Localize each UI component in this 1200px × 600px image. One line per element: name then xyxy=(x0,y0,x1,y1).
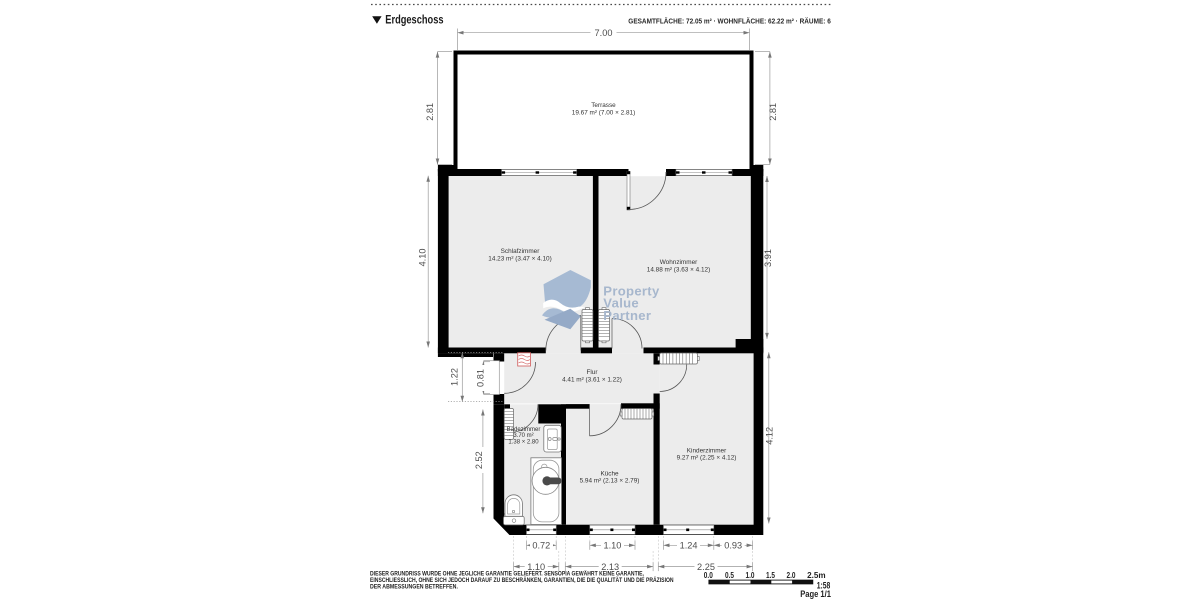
svg-text:2.5m: 2.5m xyxy=(807,570,826,580)
svg-text:Wohnzimmer: Wohnzimmer xyxy=(660,259,698,266)
svg-text:14.88 m² (3.63 × 4.12): 14.88 m² (3.63 × 4.12) xyxy=(647,267,710,274)
svg-text:GESAMTFLÄCHE: 72.05 m² · WOHNF: GESAMTFLÄCHE: 72.05 m² · WOHNFLÄCHE: 62.… xyxy=(628,18,831,26)
svg-text:5.94 m² (2.13 × 2.79): 5.94 m² (2.13 × 2.79) xyxy=(580,478,640,485)
svg-text:7.00: 7.00 xyxy=(595,28,613,38)
svg-text:Küche: Küche xyxy=(600,470,619,477)
svg-text:2.81: 2.81 xyxy=(768,103,778,121)
svg-text:1.22: 1.22 xyxy=(450,368,460,386)
svg-text:1.24: 1.24 xyxy=(680,541,698,551)
svg-text:2.81: 2.81 xyxy=(425,103,435,121)
svg-text:1.0: 1.0 xyxy=(746,570,755,580)
svg-text:2.52: 2.52 xyxy=(474,451,484,469)
svg-text:0.5: 0.5 xyxy=(725,570,734,580)
svg-text:Badezimmer: Badezimmer xyxy=(507,427,541,433)
svg-text:14.23 m² (3.47 × 4.10): 14.23 m² (3.47 × 4.10) xyxy=(488,255,551,262)
svg-text:Terrasse: Terrasse xyxy=(591,102,616,109)
svg-text:2.0: 2.0 xyxy=(787,570,796,580)
svg-text:0.72: 0.72 xyxy=(532,541,550,551)
svg-text:Flur: Flur xyxy=(586,369,598,376)
svg-text:3.91: 3.91 xyxy=(763,249,773,267)
svg-text:1.5: 1.5 xyxy=(766,570,775,580)
svg-text:1.10: 1.10 xyxy=(603,541,621,551)
svg-text:9.27 m² (2.25 × 4.12): 9.27 m² (2.25 × 4.12) xyxy=(677,455,737,462)
svg-text:4.10: 4.10 xyxy=(417,249,427,267)
svg-text:Kinderzimmer: Kinderzimmer xyxy=(687,447,727,454)
svg-text:4.41 m² (3.61 × 1.22): 4.41 m² (3.61 × 1.22) xyxy=(562,377,622,384)
svg-text:19.67 m² (7.00 × 2.81): 19.67 m² (7.00 × 2.81) xyxy=(572,110,635,117)
svg-text:0.0: 0.0 xyxy=(704,570,713,580)
svg-text:DER ABMESSUNGEN BETREFFEN.: DER ABMESSUNGEN BETREFFEN. xyxy=(370,583,458,590)
svg-text:Erdgeschoss: Erdgeschoss xyxy=(385,14,443,27)
svg-text:3.70 m²: 3.70 m² xyxy=(513,433,533,439)
svg-text:0.93: 0.93 xyxy=(724,541,742,551)
svg-text:1.38 × 2.80: 1.38 × 2.80 xyxy=(508,439,539,445)
svg-text:Partner: Partner xyxy=(603,308,651,323)
svg-text:Page 1/1: Page 1/1 xyxy=(800,589,831,599)
svg-text:4.12: 4.12 xyxy=(764,427,774,445)
svg-text:0.81: 0.81 xyxy=(476,369,486,387)
svg-text:Schlafzimmer: Schlafzimmer xyxy=(501,248,541,255)
